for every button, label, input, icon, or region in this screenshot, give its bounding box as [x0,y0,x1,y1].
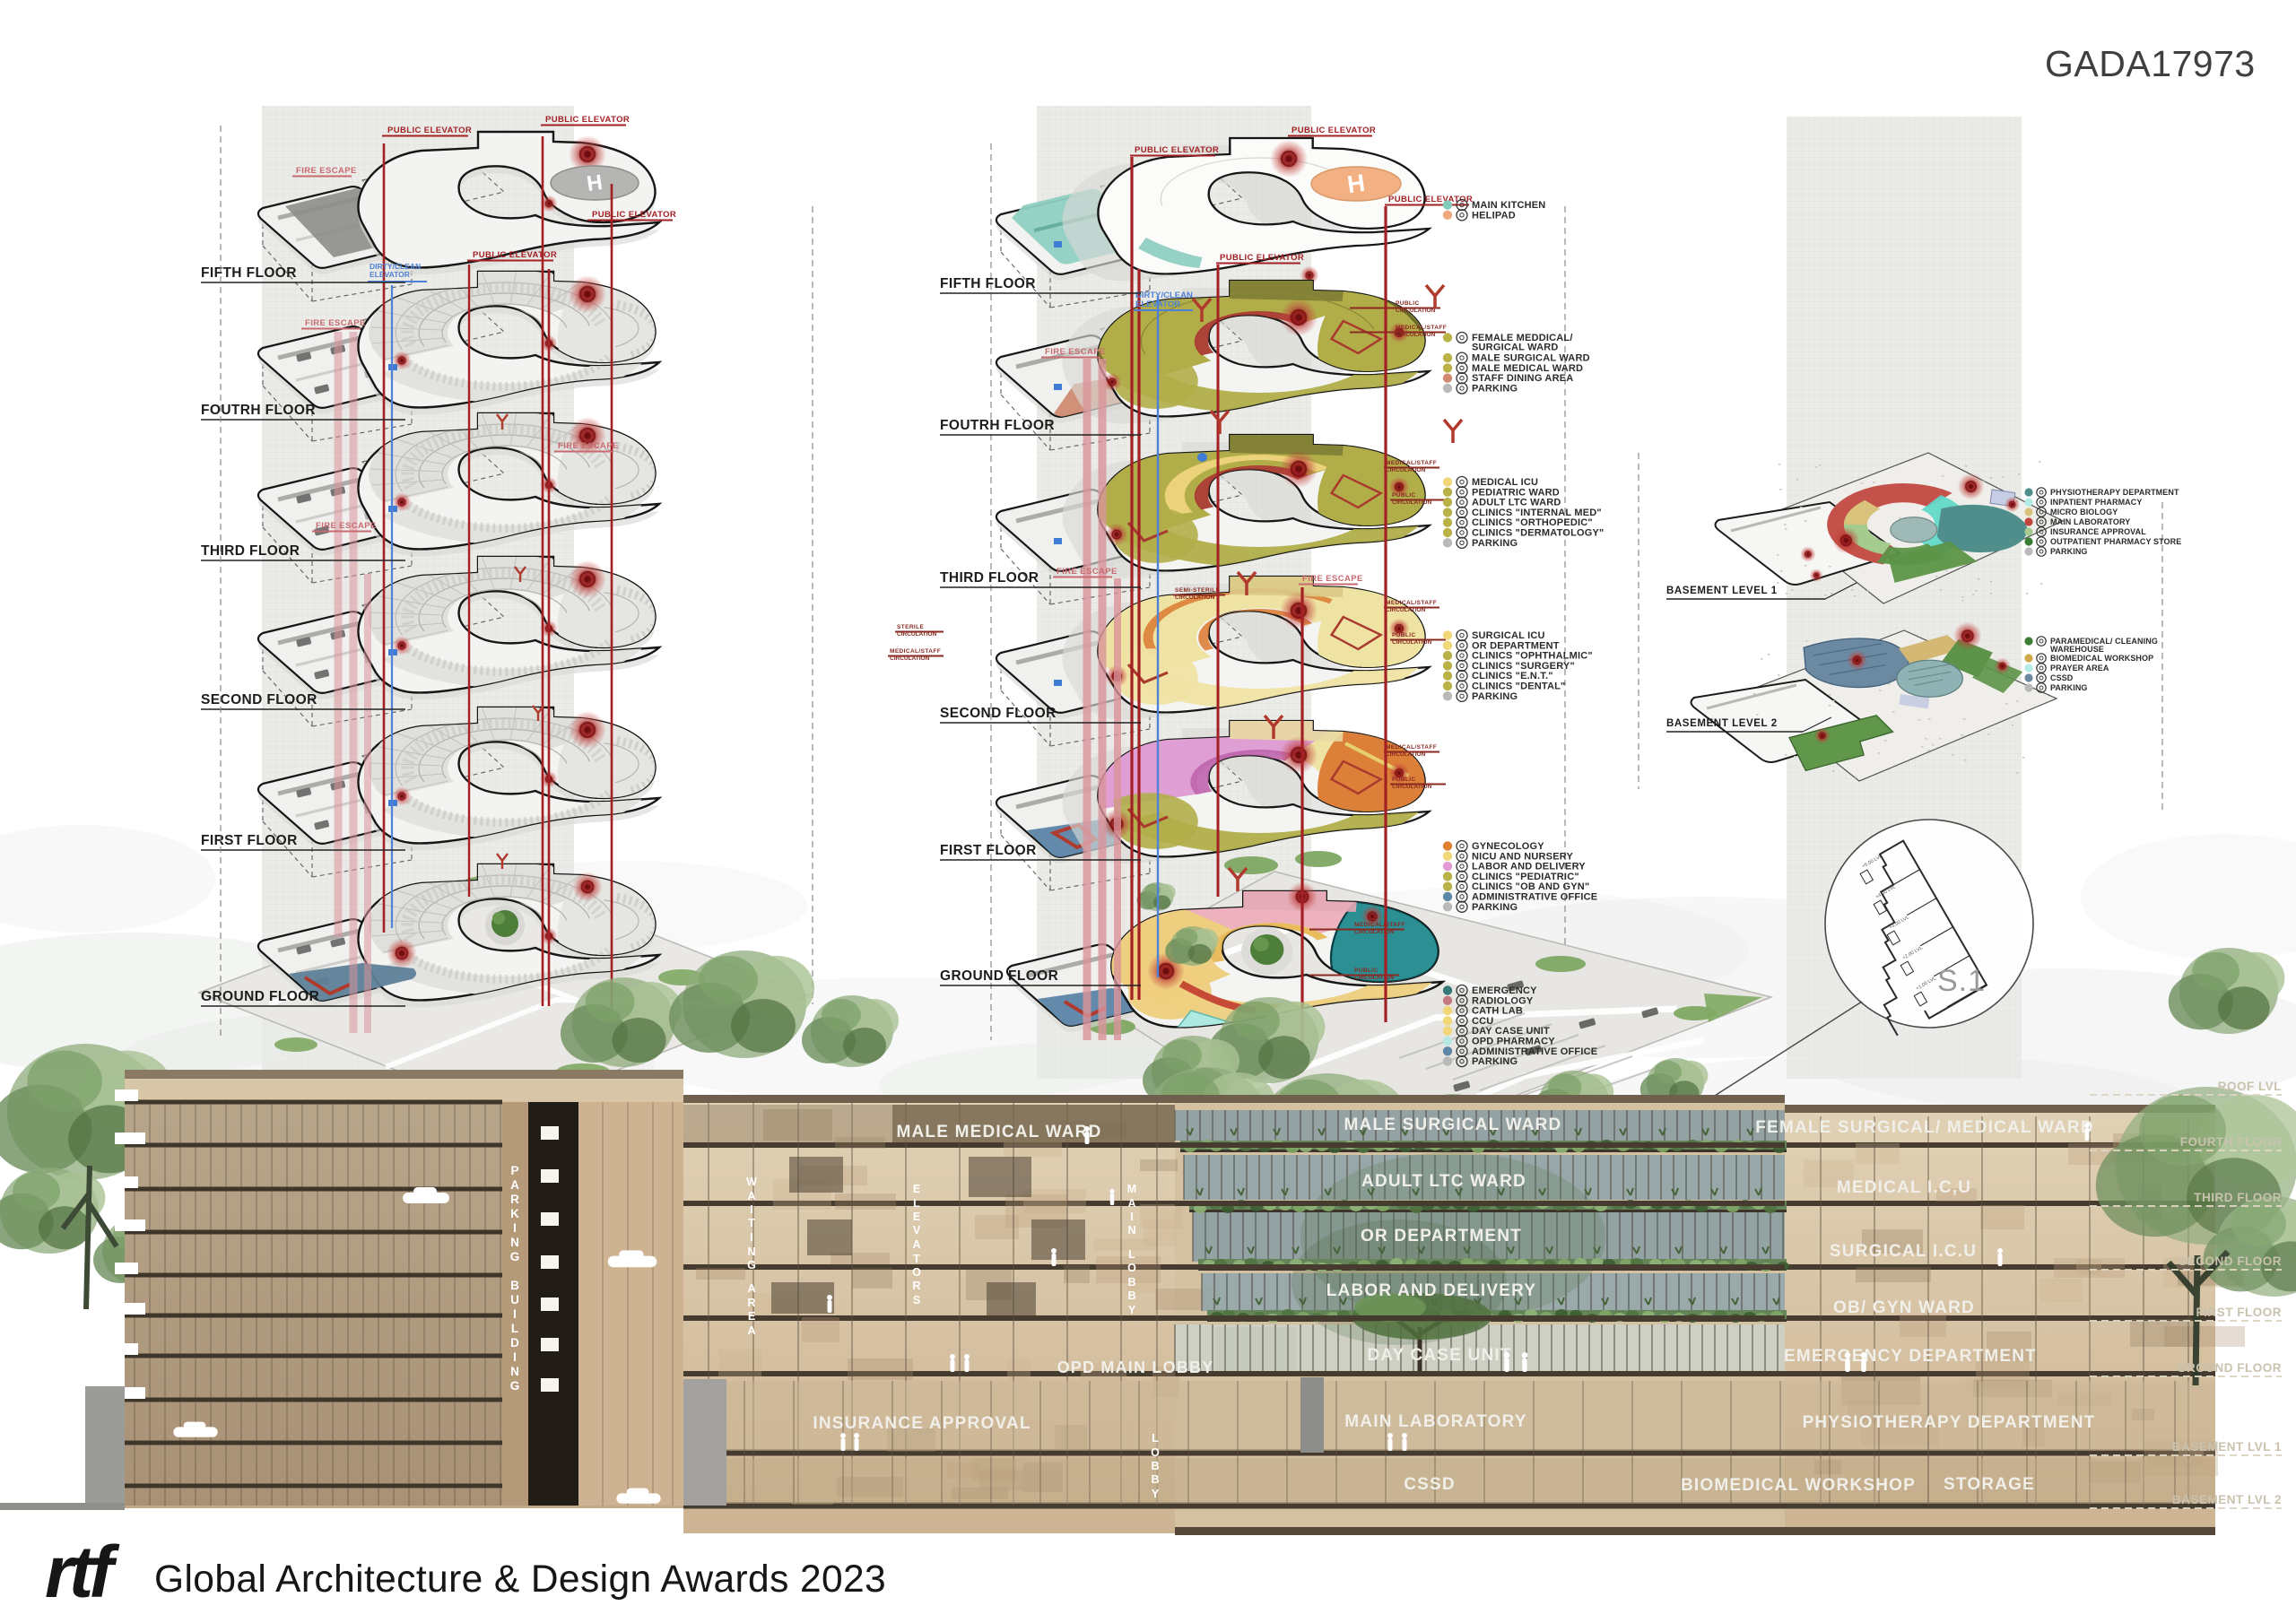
svg-text:INPATIENT PHARMACY: INPATIENT PHARMACY [2050,498,2142,507]
svg-text:SECOND FLOOR: SECOND FLOOR [201,692,317,707]
svg-text:CIRCULATION: CIRCULATION [890,655,930,662]
svg-text:Y: Y [1152,1488,1160,1500]
svg-text:BASEMENT LEVEL 1: BASEMENT LEVEL 1 [1666,586,1778,596]
svg-text:PEDIATRIC WARD: PEDIATRIC WARD [1472,487,1560,498]
svg-text:FIRE ESCAPE: FIRE ESCAPE [305,318,366,328]
svg-text:OB/ GYN WARD: OB/ GYN WARD [1833,1298,1975,1317]
svg-text:FIRE ESCAPE: FIRE ESCAPE [316,521,377,531]
svg-text:H: H [1345,169,1366,198]
svg-text:I: I [1130,1211,1133,1223]
svg-text:I: I [513,1350,517,1364]
svg-text:PUBLIC ELEVATOR: PUBLIC ELEVATOR [545,115,630,125]
svg-text:SECOND FLOOR: SECOND FLOOR [940,706,1057,721]
svg-text:PUBLIC ELEVATOR: PUBLIC ELEVATOR [1291,126,1376,135]
svg-text:CIRCULATION: CIRCULATION [1386,751,1426,758]
svg-text:PUBLIC: PUBLIC [1392,777,1416,783]
svg-text:FIRE ESCAPE: FIRE ESCAPE [296,166,357,176]
svg-text:ADULT LTC WARD: ADULT LTC WARD [1361,1172,1526,1191]
svg-text:MEDICAL/STAFF: MEDICAL/STAFF [1354,922,1405,928]
svg-text:PARKING: PARKING [1472,384,1518,395]
svg-text:INSURANCE APPROVAL: INSURANCE APPROVAL [813,1414,1031,1433]
svg-text:PUBLIC ELEVATOR: PUBLIC ELEVATOR [1220,253,1304,263]
svg-text:A: A [747,1282,755,1295]
svg-text:E: E [748,1310,755,1323]
svg-text:GADA17973: GADA17973 [2045,43,2256,84]
svg-text:CIRCULATION: CIRCULATION [897,631,937,638]
svg-text:CATH LAB: CATH LAB [1472,1006,1523,1017]
svg-text:PUBLIC: PUBLIC [1392,632,1416,638]
svg-text:OUTPATIENT PHARMACY STORE: OUTPATIENT PHARMACY STORE [2050,537,2181,546]
svg-text:PUBLIC ELEVATOR: PUBLIC ELEVATOR [473,250,557,260]
svg-text:N: N [510,1236,519,1249]
svg-text:CIRCULATION: CIRCULATION [1392,639,1432,646]
svg-text:MAIN KITCHEN: MAIN KITCHEN [1472,200,1545,211]
svg-text:M: M [1127,1183,1136,1195]
svg-text:ROOF LVL: ROOF LVL [2218,1080,2282,1093]
svg-text:BIOMEDICAL WORKSHOP: BIOMEDICAL WORKSHOP [1681,1476,1916,1495]
svg-text:NICU AND NURSERY: NICU AND NURSERY [1472,851,1573,862]
svg-text:LABOR AND DELIVERY: LABOR AND DELIVERY [1472,862,1586,872]
svg-text:CIRCULATION: CIRCULATION [1354,975,1395,981]
svg-text:SECOND FLOOR: SECOND FLOOR [2179,1254,2282,1268]
svg-text:CLINICS "PEDIATRIC": CLINICS "PEDIATRIC" [1472,872,1579,882]
svg-text:L: L [1152,1432,1159,1445]
svg-text:EMERGENCY: EMERGENCY [1472,985,1537,996]
svg-text:B: B [1151,1460,1159,1472]
svg-text:DAY CASE UNIT: DAY CASE UNIT [1472,1026,1550,1037]
svg-text:L: L [913,1197,920,1210]
svg-text:CLINICS "INTERNAL MED": CLINICS "INTERNAL MED" [1472,508,1602,518]
svg-text:FOUTRH FLOOR: FOUTRH FLOOR [201,403,316,418]
svg-text:PUBLIC ELEVATOR: PUBLIC ELEVATOR [387,126,472,135]
svg-text:MALE MEDICAL WARD: MALE MEDICAL WARD [1472,363,1583,374]
svg-text:U: U [510,1293,519,1306]
svg-text:ADMINISTRATIVE OFFICE: ADMINISTRATIVE OFFICE [1472,892,1597,903]
svg-text:R: R [747,1297,755,1309]
svg-text:PARKING: PARKING [1472,1056,1518,1067]
svg-text:INSURANCE APPROVAL: INSURANCE APPROVAL [2050,527,2146,536]
svg-text:OR DEPARTMENT: OR DEPARTMENT [1472,640,1560,651]
svg-text:N: N [510,1365,519,1378]
svg-text:W: W [746,1176,757,1188]
svg-text:PARKING: PARKING [2050,683,2088,692]
svg-text:PUBLIC ELEVATOR: PUBLIC ELEVATOR [1135,145,1219,155]
svg-text:MICRO BIOLOGY: MICRO BIOLOGY [2050,508,2118,516]
svg-text:GROUND FLOOR: GROUND FLOOR [201,989,319,1004]
svg-text:PHYSIOTHERAPY DEPARTMENT: PHYSIOTHERAPY DEPARTMENT [2050,488,2179,497]
svg-text:K: K [510,1207,519,1220]
svg-text:E: E [913,1183,920,1195]
svg-text:T: T [748,1217,755,1229]
svg-text:MAIN LABORATORY: MAIN LABORATORY [1344,1412,1526,1431]
svg-text:G: G [510,1379,520,1393]
svg-text:FOURTH FLOOR: FOURTH FLOOR [2180,1135,2282,1149]
svg-text:CCU: CCU [1472,1016,1493,1027]
svg-text:A: A [747,1324,755,1337]
svg-text:CLINICS "DENTAL": CLINICS "DENTAL" [1472,681,1565,692]
svg-text:PARKING: PARKING [1472,902,1518,913]
svg-text:Global Architecture & Design A: Global Architecture & Design Awards 2023 [154,1558,886,1601]
svg-text:CIRCULATION: CIRCULATION [1386,607,1426,613]
svg-text:P: P [510,1164,518,1177]
svg-text:CLINICS "E.N.T.": CLINICS "E.N.T." [1472,671,1553,681]
svg-text:O: O [912,1266,921,1279]
svg-text:PUBLIC: PUBLIC [1396,300,1420,307]
svg-text:BASEMENT LVL 2: BASEMENT LVL 2 [2172,1493,2282,1506]
svg-text:R: R [510,1193,519,1206]
svg-text:CIRCULATION: CIRCULATION [1386,467,1426,473]
svg-text:MEDICAL/STAFF: MEDICAL/STAFF [890,648,941,655]
svg-text:A: A [747,1190,755,1202]
svg-text:G: G [747,1259,756,1271]
svg-text:S: S [913,1294,920,1306]
svg-text:CLINICS "DERMATOLOGY": CLINICS "DERMATOLOGY" [1472,528,1604,539]
svg-text:MEDICAL/STAFF: MEDICAL/STAFF [1396,325,1447,331]
svg-text:A: A [912,1238,920,1251]
svg-text:PARKING: PARKING [1472,691,1518,702]
svg-text:HELIPAD: HELIPAD [1472,210,1516,221]
svg-text:CLINICS "SURGERY": CLINICS "SURGERY" [1472,661,1575,672]
svg-text:D: D [510,1336,519,1350]
svg-text:THIRD FLOOR: THIRD FLOOR [2194,1191,2282,1204]
svg-text:SURGICAL ICU: SURGICAL ICU [1472,630,1545,641]
svg-text:OR DEPARTMENT: OR DEPARTMENT [1361,1227,1522,1245]
svg-text:LABOR AND DELIVERY: LABOR AND DELIVERY [1326,1281,1536,1300]
svg-text:L: L [1128,1248,1135,1261]
svg-text:B: B [1127,1289,1135,1302]
svg-text:STAFF DINING AREA: STAFF DINING AREA [1472,373,1573,384]
svg-text:N: N [1127,1224,1135,1237]
svg-text:PARKING: PARKING [1472,538,1518,549]
svg-text:WAREHOUSE: WAREHOUSE [2050,645,2104,654]
svg-text:FIRE ESCAPE: FIRE ESCAPE [558,441,619,451]
svg-text:B: B [510,1279,519,1292]
svg-text:PRAYER AREA: PRAYER AREA [2050,664,2109,673]
svg-text:FIFTH FLOOR: FIFTH FLOOR [201,265,297,281]
svg-text:T: T [913,1253,920,1265]
svg-text:ELEVATOR: ELEVATOR [1135,299,1180,309]
svg-text:G: G [510,1250,520,1263]
svg-text:E: E [913,1211,920,1223]
svg-text:SURGICAL WARD: SURGICAL WARD [1472,342,1559,352]
svg-text:CLINICS "ORTHOPEDIC": CLINICS "ORTHOPEDIC" [1472,517,1593,528]
svg-text:ADMINISTRATIVE OFFICE: ADMINISTRATIVE OFFICE [1472,1046,1597,1057]
svg-text:CSSD: CSSD [1404,1475,1456,1494]
svg-text:GROUND FLOOR: GROUND FLOOR [2177,1361,2282,1375]
svg-text:A: A [1127,1197,1135,1210]
svg-text:I: I [513,1221,517,1235]
svg-text:BASEMENT LEVEL 2: BASEMENT LEVEL 2 [1666,718,1778,729]
svg-text:A: A [510,1178,519,1192]
svg-text:I: I [750,1203,752,1216]
svg-text:B: B [1127,1276,1135,1289]
svg-text:EMERGENCY DEPARTMENT: EMERGENCY DEPARTMENT [1784,1347,2037,1366]
svg-text:PUBLIC: PUBLIC [1354,968,1378,974]
svg-text:FOUTRH FLOOR: FOUTRH FLOOR [940,418,1055,433]
svg-text:DAY CASE UNIT: DAY CASE UNIT [1367,1346,1511,1365]
svg-text:R: R [912,1280,920,1292]
svg-text:PUBLIC ELEVATOR: PUBLIC ELEVATOR [592,210,676,220]
svg-text:MEDICAL/STAFF: MEDICAL/STAFF [1386,460,1437,466]
svg-text:BASEMENT LVL 1: BASEMENT LVL 1 [2172,1440,2282,1454]
svg-text:FIRST FLOOR: FIRST FLOOR [201,833,298,848]
svg-text:PHYSIOTHERAPY DEPARTMENT: PHYSIOTHERAPY DEPARTMENT [1803,1413,2096,1432]
svg-text:OPD PHARMACY: OPD PHARMACY [1472,1037,1555,1047]
svg-text:FEMALE SURGICAL/ MEDICAL WARD: FEMALE SURGICAL/ MEDICAL WARD [1755,1118,2094,1137]
svg-text:ADULT LTC WARD: ADULT LTC WARD [1472,498,1561,508]
svg-text:MEDICAL I.C,U: MEDICAL I.C,U [1837,1178,1971,1197]
svg-text:MEDICAL ICU: MEDICAL ICU [1472,477,1538,488]
svg-text:O: O [1151,1446,1160,1459]
svg-text:CIRCULATION: CIRCULATION [1392,499,1432,506]
svg-text:B: B [1151,1473,1159,1486]
svg-text:FIRST FLOOR: FIRST FLOOR [940,843,1037,858]
svg-text:SURGICAL I.C.U: SURGICAL I.C.U [1830,1242,1977,1261]
svg-text:BIOMEDICAL WORKSHOP: BIOMEDICAL WORKSHOP [2050,654,2153,663]
svg-text:SEMI-STERILE: SEMI-STERILE [1175,587,1221,594]
svg-text:CIRCULATION: CIRCULATION [1392,784,1432,790]
svg-text:CIRCULATION: CIRCULATION [1175,595,1215,601]
svg-text:MEDICAL/STAFF: MEDICAL/STAFF [1386,600,1437,606]
svg-text:OPD MAIN LOBBY: OPD MAIN LOBBY [1057,1358,1214,1376]
svg-text:I: I [513,1307,517,1321]
svg-text:ELEVATOR: ELEVATOR [370,270,410,279]
svg-text:CIRCULATION: CIRCULATION [1396,332,1436,338]
svg-text:MEDICAL/STAFF: MEDICAL/STAFF [1386,744,1437,751]
svg-text:MALE MEDICAL WARD: MALE MEDICAL WARD [896,1123,1101,1141]
svg-text:GROUND FLOOR: GROUND FLOOR [940,968,1058,984]
svg-text:FIRE ESCAPE: FIRE ESCAPE [1057,567,1118,577]
svg-text:MALE SURGICAL WARD: MALE SURGICAL WARD [1344,1115,1562,1134]
svg-text:CSSD: CSSD [2050,673,2074,682]
svg-text:N: N [747,1245,755,1258]
svg-text:L: L [511,1322,518,1335]
svg-text:Y: Y [1128,1304,1136,1316]
svg-text:CLINICS "OB AND GYN": CLINICS "OB AND GYN" [1472,881,1589,892]
svg-text:CIRCULATION: CIRCULATION [1396,308,1436,314]
svg-text:CIRCULATION: CIRCULATION [1354,929,1395,935]
svg-text:MAIN LABORATORY: MAIN LABORATORY [2050,517,2130,526]
svg-text:FIRE ESCAPE: FIRE ESCAPE [1045,347,1106,357]
svg-text:PUBLIC: PUBLIC [1392,492,1416,499]
svg-text:PARKING: PARKING [2050,547,2088,556]
svg-text:RADIOLOGY: RADIOLOGY [1472,995,1534,1006]
svg-text:I: I [750,1231,752,1244]
svg-text:STERILE: STERILE [897,624,925,630]
svg-text:V: V [913,1224,921,1237]
svg-text:S.1: S.1 [1937,964,1986,998]
svg-text:MALE SURGICAL WARD: MALE SURGICAL WARD [1472,353,1590,364]
svg-text:GYNECOLOGY: GYNECOLOGY [1472,841,1544,852]
svg-text:THIRD FLOOR: THIRD FLOOR [940,570,1039,586]
svg-text:O: O [1127,1262,1136,1274]
svg-text:FIRST FLOOR: FIRST FLOOR [2196,1306,2283,1319]
svg-text:STORAGE: STORAGE [1944,1475,2035,1494]
svg-text:CLINICS "OPHTHALMIC": CLINICS "OPHTHALMIC" [1472,651,1593,662]
svg-text:FIFTH FLOOR: FIFTH FLOOR [940,276,1036,291]
svg-text:THIRD FLOOR: THIRD FLOOR [201,543,300,559]
svg-text:FIRE ESCAPE: FIRE ESCAPE [1302,574,1363,584]
